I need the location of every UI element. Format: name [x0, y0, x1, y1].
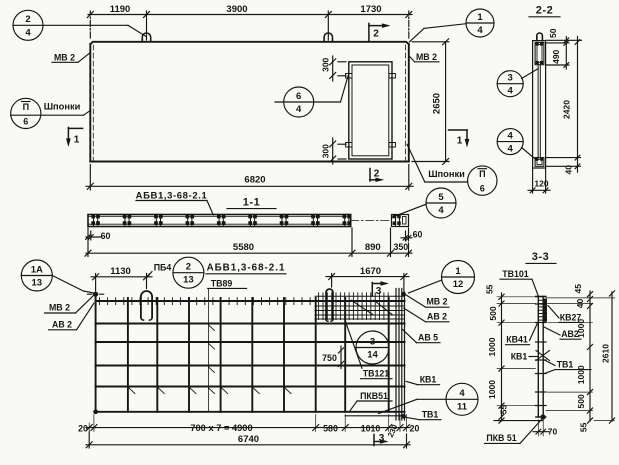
- svg-text:1: 1: [455, 266, 461, 277]
- svg-text:1190: 1190: [110, 4, 131, 15]
- svg-text:60: 60: [413, 229, 423, 239]
- svg-text:5: 5: [438, 192, 444, 203]
- svg-text:11: 11: [457, 401, 468, 412]
- svg-text:АВ 5: АВ 5: [418, 333, 438, 343]
- svg-text:13: 13: [32, 278, 43, 289]
- svg-text:1: 1: [477, 12, 483, 23]
- svg-text:4: 4: [296, 104, 302, 115]
- svg-text:20: 20: [78, 423, 88, 433]
- svg-text:ПБ4: ПБ4: [154, 262, 172, 272]
- svg-text:2: 2: [25, 14, 30, 25]
- svg-text:70: 70: [548, 426, 558, 436]
- svg-text:890: 890: [365, 242, 381, 253]
- svg-text:МВ 2: МВ 2: [426, 297, 447, 307]
- svg-text:4: 4: [459, 388, 465, 399]
- svg-text:40: 40: [564, 165, 574, 175]
- svg-text:1000: 1000: [487, 380, 497, 399]
- svg-text:ТВ121: ТВ121: [363, 369, 390, 379]
- svg-text:1: 1: [457, 136, 463, 147]
- svg-text:МВ 2: МВ 2: [49, 303, 70, 313]
- svg-text:4: 4: [508, 130, 514, 141]
- svg-text:АВ 2: АВ 2: [427, 312, 447, 322]
- svg-text:1670: 1670: [360, 266, 381, 277]
- svg-text:20: 20: [410, 423, 420, 433]
- svg-text:МВ 2: МВ 2: [416, 52, 437, 62]
- svg-text:14: 14: [367, 350, 378, 361]
- svg-text:500: 500: [576, 394, 586, 408]
- svg-text:АБВ1,3-68-2.1: АБВ1,3-68-2.1: [136, 190, 208, 201]
- svg-text:5580: 5580: [233, 242, 254, 253]
- svg-text:2420: 2420: [562, 100, 572, 119]
- svg-text:4: 4: [477, 25, 483, 36]
- svg-text:ПКВ51: ПКВ51: [360, 391, 388, 401]
- svg-text:6820: 6820: [244, 175, 265, 186]
- svg-text:ТВ1: ТВ1: [422, 410, 439, 420]
- svg-text:П: П: [23, 102, 29, 112]
- svg-text:750: 750: [322, 353, 337, 363]
- svg-text:50: 50: [548, 28, 558, 38]
- svg-text:300: 300: [321, 57, 331, 71]
- svg-text:490: 490: [551, 49, 561, 63]
- svg-text:55: 55: [579, 422, 589, 432]
- svg-text:2: 2: [374, 169, 380, 180]
- svg-text:6: 6: [480, 184, 485, 194]
- svg-text:12: 12: [453, 279, 464, 290]
- svg-text:ТВ1: ТВ1: [557, 360, 574, 370]
- svg-text:1010: 1010: [361, 423, 381, 433]
- svg-text:3900: 3900: [226, 4, 247, 15]
- svg-text:П: П: [479, 169, 485, 179]
- svg-text:700 х 7 = 4900: 700 х 7 = 4900: [190, 423, 252, 433]
- svg-text:1: 1: [74, 135, 80, 146]
- svg-text:45: 45: [573, 284, 583, 294]
- svg-text:3: 3: [376, 286, 382, 297]
- svg-text:60: 60: [101, 231, 111, 241]
- svg-text:2650: 2650: [432, 93, 443, 114]
- svg-text:500: 500: [488, 306, 498, 320]
- svg-text:ТВ89: ТВ89: [211, 278, 233, 288]
- svg-text:2: 2: [186, 262, 191, 273]
- svg-text:1000: 1000: [576, 319, 586, 338]
- svg-text:3-3: 3-3: [532, 251, 549, 263]
- svg-text:1А: 1А: [31, 264, 43, 275]
- svg-text:2-2: 2-2: [536, 5, 553, 17]
- svg-text:Шпонки: Шпонки: [428, 169, 465, 179]
- svg-text:580: 580: [323, 423, 338, 433]
- svg-text:КВ41: КВ41: [506, 335, 528, 345]
- svg-text:4: 4: [508, 144, 514, 155]
- svg-text:6740: 6740: [238, 434, 259, 445]
- svg-text:55: 55: [484, 284, 494, 294]
- svg-text:3: 3: [370, 336, 375, 347]
- svg-text:2610: 2610: [601, 344, 611, 363]
- svg-text:1730: 1730: [360, 4, 381, 15]
- svg-text:Шпонки: Шпонки: [44, 101, 81, 111]
- svg-text:1-1: 1-1: [243, 196, 260, 208]
- svg-text:КВ1: КВ1: [420, 375, 437, 385]
- svg-text:1000: 1000: [576, 365, 586, 384]
- svg-text:4: 4: [438, 205, 444, 216]
- svg-text:3: 3: [508, 73, 513, 84]
- svg-text:6: 6: [23, 117, 28, 127]
- svg-text:6: 6: [296, 91, 301, 102]
- svg-text:350: 350: [393, 242, 408, 252]
- svg-text:ТВ101: ТВ101: [502, 269, 529, 279]
- svg-text:АБВ1,3-68-2.1: АБВ1,3-68-2.1: [207, 263, 286, 274]
- svg-text:ПКВ 51: ПКВ 51: [486, 433, 516, 443]
- svg-text:КВ1: КВ1: [511, 352, 528, 362]
- svg-text:13: 13: [183, 275, 194, 286]
- svg-text:4: 4: [25, 27, 31, 38]
- svg-text:2: 2: [373, 29, 379, 40]
- svg-text:АВ 2: АВ 2: [52, 320, 72, 330]
- svg-text:4: 4: [508, 86, 514, 97]
- svg-text:120: 120: [534, 179, 548, 189]
- svg-text:55: 55: [499, 405, 509, 415]
- svg-text:300: 300: [321, 144, 331, 158]
- svg-text:МВ 2: МВ 2: [54, 52, 75, 62]
- svg-text:1130: 1130: [110, 266, 131, 277]
- svg-text:3: 3: [379, 433, 385, 444]
- svg-text:1000: 1000: [487, 337, 497, 356]
- svg-text:40: 40: [575, 299, 585, 309]
